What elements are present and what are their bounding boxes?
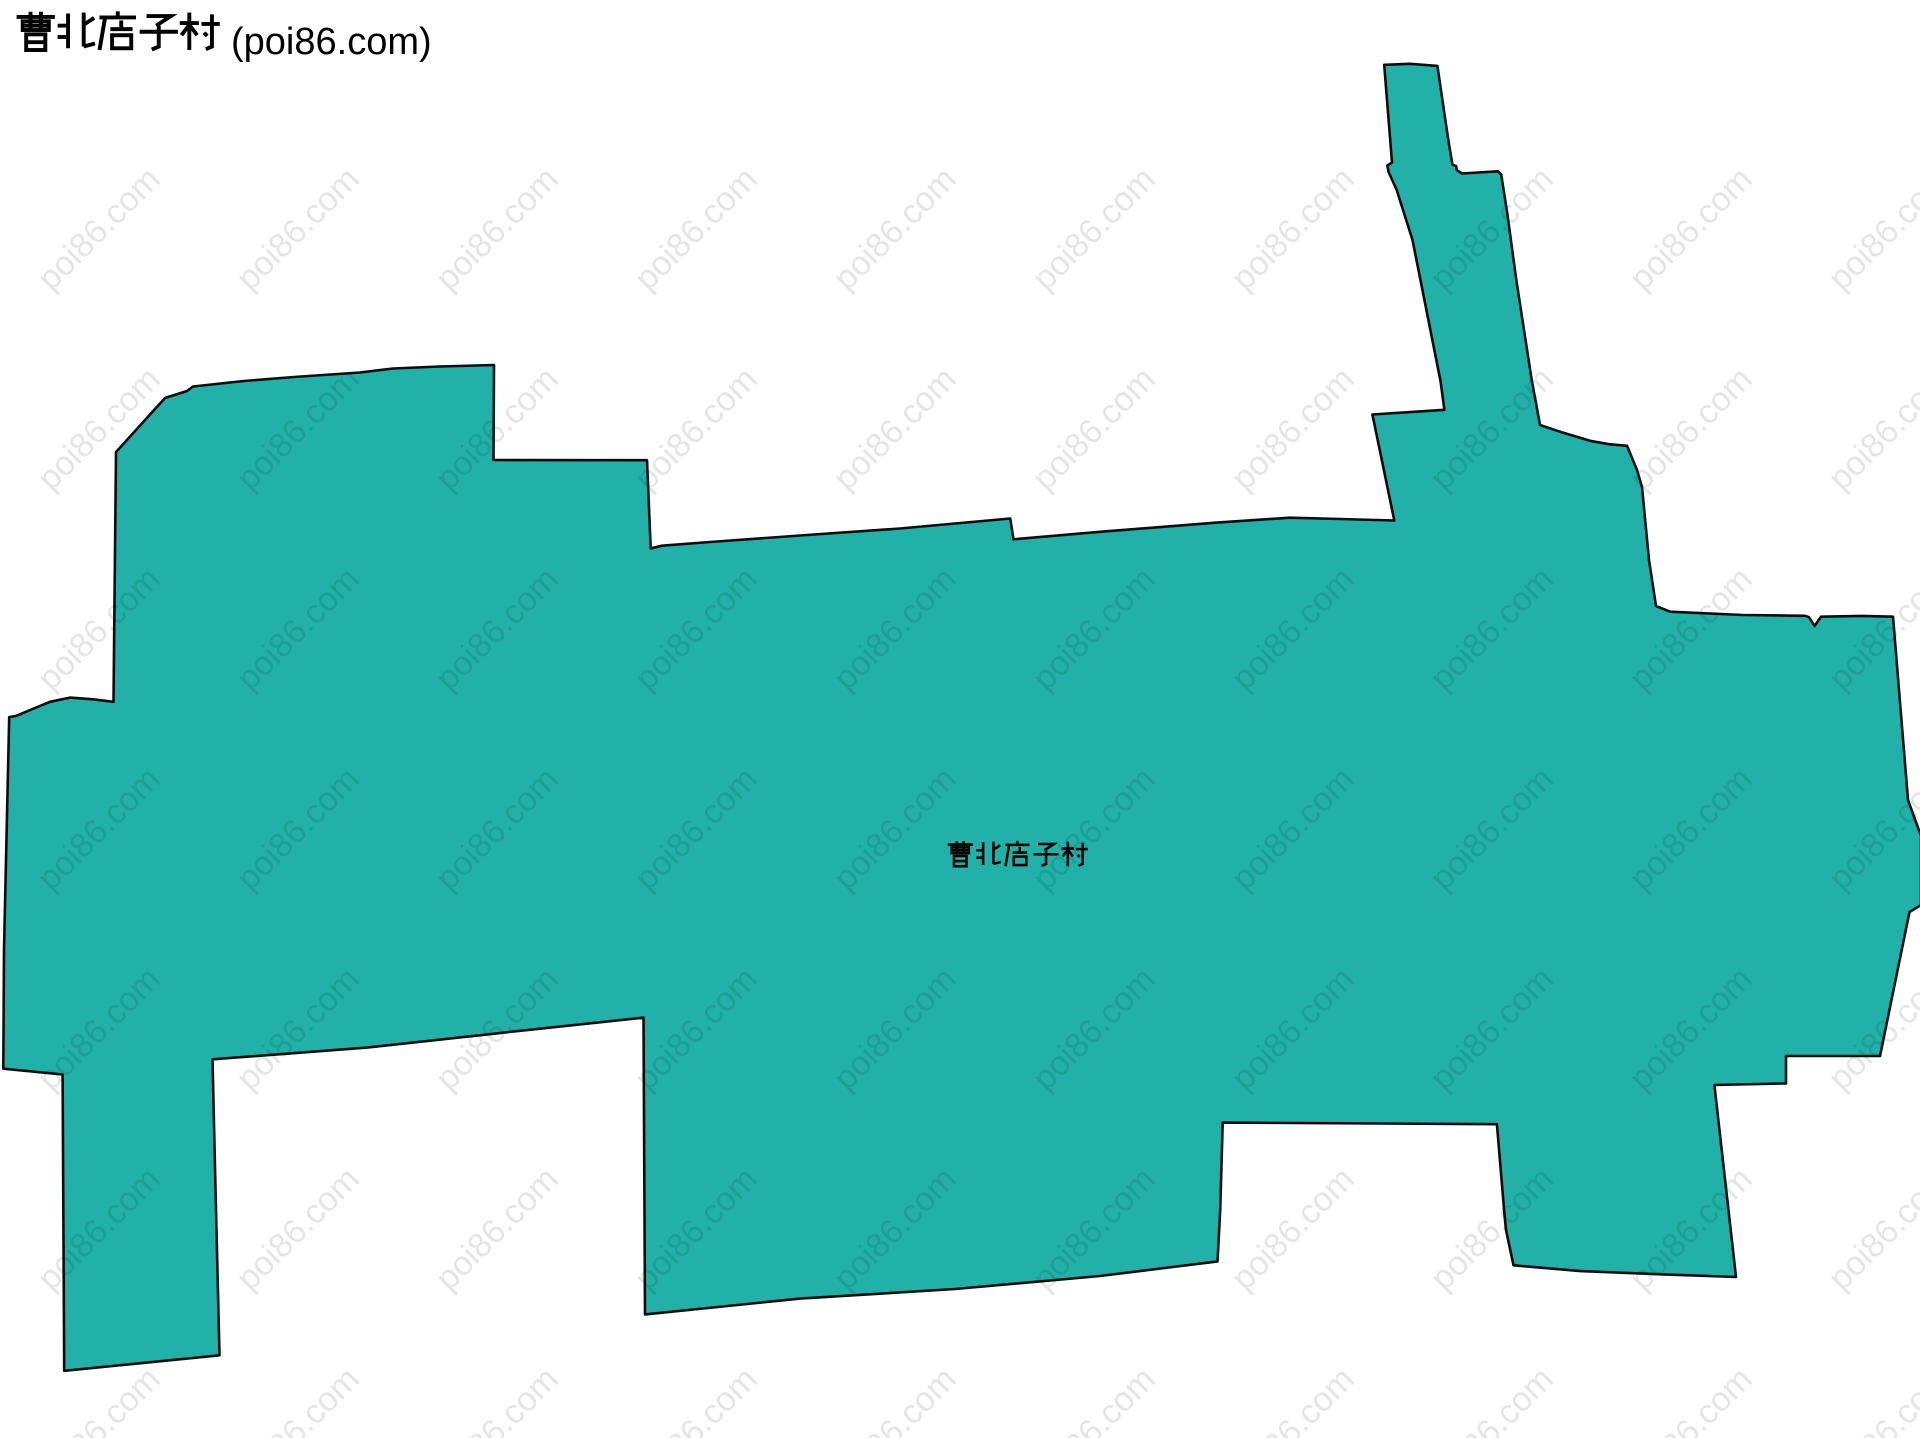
svg-text:(poi86.com): (poi86.com) [231, 21, 432, 63]
